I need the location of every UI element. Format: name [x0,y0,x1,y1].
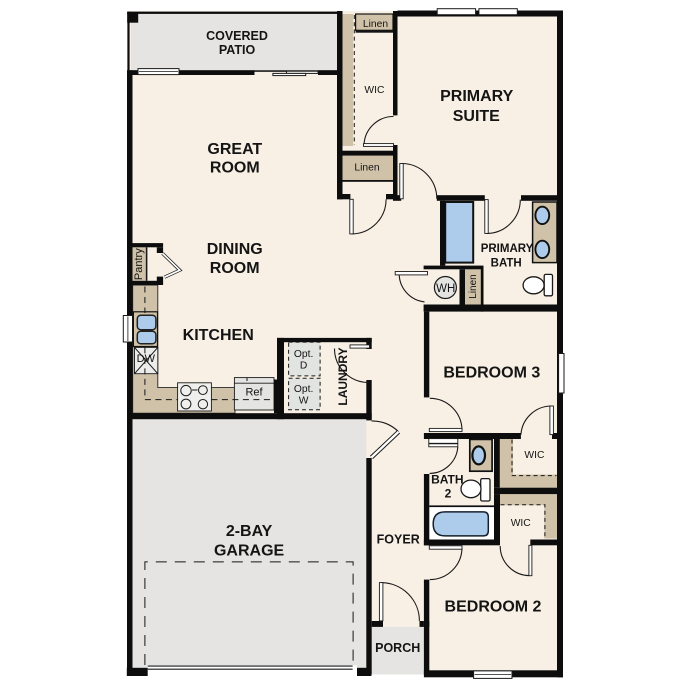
svg-text:GARAGE: GARAGE [214,543,285,560]
svg-text:BEDROOM 2: BEDROOM 2 [445,599,542,616]
svg-text:FOYER: FOYER [377,532,420,546]
svg-text:ROOM: ROOM [210,160,260,177]
svg-text:D: D [300,361,307,372]
svg-text:Opt.: Opt. [294,384,313,395]
svg-text:DINING: DINING [207,241,263,258]
svg-text:Opt.: Opt. [294,349,313,360]
svg-text:WH: WH [436,283,455,295]
svg-text:WIC: WIC [511,518,532,529]
svg-text:2-BAY: 2-BAY [226,523,273,540]
svg-text:2: 2 [445,487,452,501]
svg-text:COVERED: COVERED [206,29,268,43]
svg-text:PRIMARY: PRIMARY [481,243,534,255]
svg-text:PORCH: PORCH [375,641,420,655]
svg-text:Linen: Linen [363,19,388,30]
svg-text:Pantry: Pantry [133,248,145,280]
svg-text:DW: DW [137,353,156,365]
svg-text:KITCHEN: KITCHEN [183,327,254,344]
svg-text:Linen: Linen [354,163,379,174]
svg-text:ROOM: ROOM [210,260,260,277]
svg-text:Ref: Ref [245,386,263,398]
svg-text:WIC: WIC [524,450,545,461]
svg-text:WIC: WIC [364,85,385,96]
svg-text:PRIMARY: PRIMARY [440,88,514,105]
svg-text:PATIO: PATIO [219,43,256,57]
svg-text:Linen: Linen [468,274,479,298]
svg-text:BEDROOM 3: BEDROOM 3 [443,365,540,382]
svg-text:W: W [299,396,309,407]
svg-text:SUITE: SUITE [453,108,500,125]
svg-text:LAUNDRY: LAUNDRY [336,347,350,405]
svg-text:GREAT: GREAT [207,141,262,158]
svg-text:BATH: BATH [491,258,522,270]
svg-text:BATH: BATH [431,473,463,487]
